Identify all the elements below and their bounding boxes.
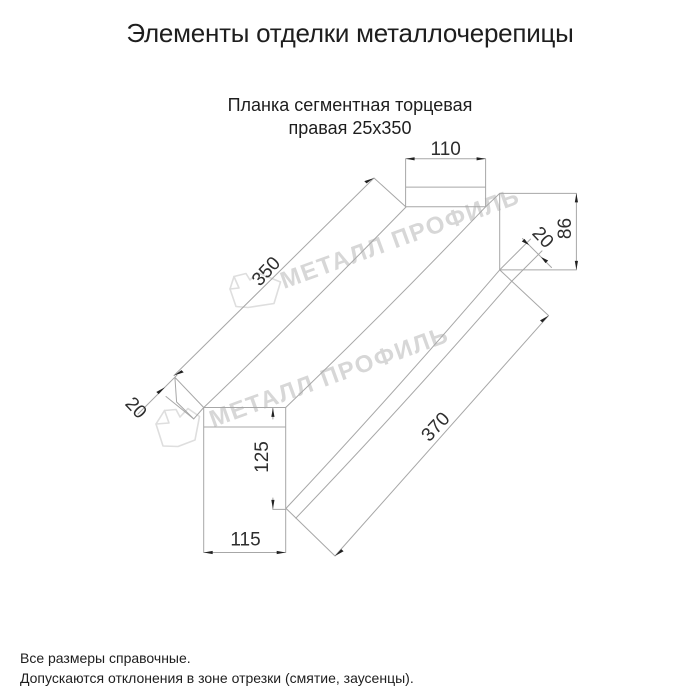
svg-text:115: 115 [230,530,260,551]
svg-text:МЕТАЛЛ ПРОФИЛЬ: МЕТАЛЛ ПРОФИЛЬ [206,321,453,433]
svg-text:370: 370 [417,408,454,446]
svg-text:110: 110 [431,139,461,160]
svg-text:20: 20 [121,393,151,423]
svg-text:125: 125 [252,441,273,473]
svg-text:86: 86 [555,218,576,239]
svg-text:МЕТАЛЛ ПРОФИЛЬ: МЕТАЛЛ ПРОФИЛЬ [277,183,524,295]
